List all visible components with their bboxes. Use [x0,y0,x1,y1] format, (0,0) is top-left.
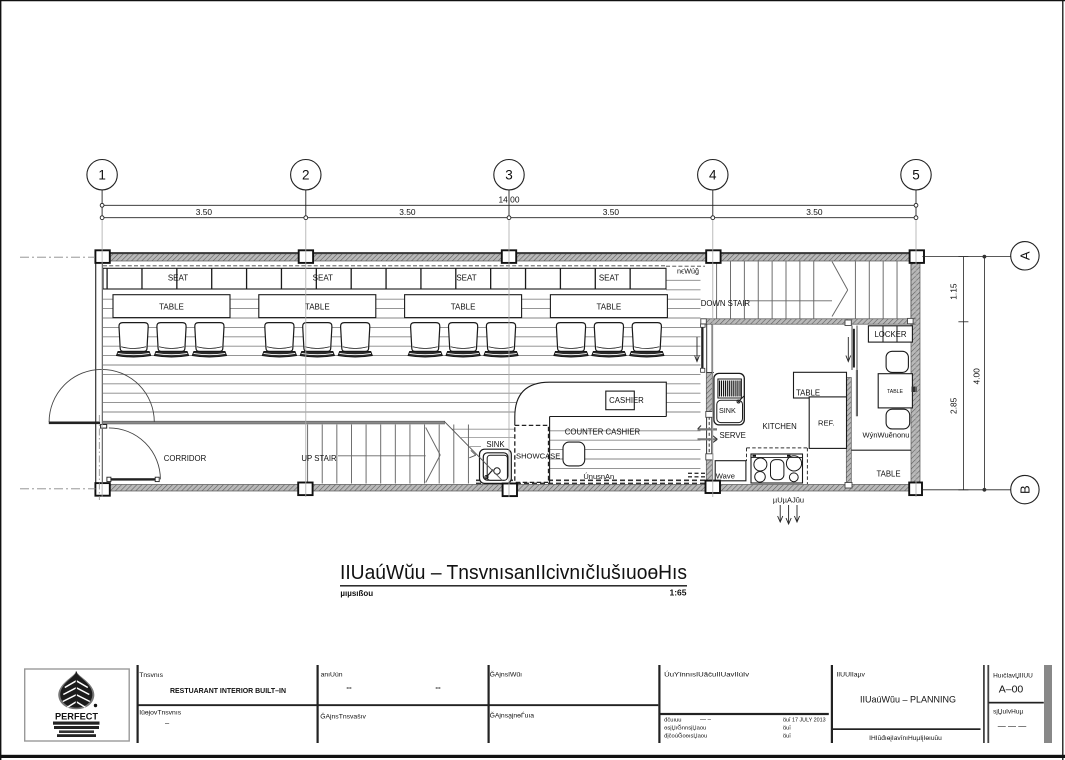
svg-text:SEAT: SEAT [168,274,188,283]
svg-text:TABLE: TABLE [597,303,622,312]
svg-text:SINK: SINK [719,406,736,415]
svg-text:A: A [1018,251,1033,260]
svg-text:ÚnusnAn: ÚnusnAn [583,472,614,481]
svg-text:1:65: 1:65 [669,588,686,598]
svg-text:SINK: SINK [486,440,505,449]
svg-text:DOWN STAIR: DOWN STAIR [701,299,751,308]
svg-text:CASHIER: CASHIER [609,396,644,405]
svg-text:µUµAJŭu: µUµAJŭu [773,496,804,505]
svg-text:3.50: 3.50 [806,207,823,217]
svg-text:— — —: — — — [998,722,1026,731]
svg-text:TABLE: TABLE [451,303,476,312]
svg-text:PERFECT: PERFECT [55,712,98,722]
svg-text:14.00: 14.00 [499,194,520,204]
svg-text:sįЏuīvHuµ: sįЏuīvHuµ [993,709,1023,716]
svg-text:ŭuī 17 JULY 2013: ŭuī 17 JULY 2013 [783,718,826,724]
svg-text:UP STAIR: UP STAIR [301,454,337,463]
svg-text:2: 2 [302,168,310,183]
svg-text:SEAT: SEAT [456,274,476,283]
svg-text:Tnsvnıs: Tnsvnıs [139,672,163,679]
svg-text:--: -- [346,683,352,692]
svg-text:5: 5 [912,168,920,183]
svg-text:HuıčIavЏIIUU: HuıčIavЏIIUU [993,673,1033,680]
svg-text:ĞAįnsIWűı: ĞAįnsIWűı [490,670,523,679]
svg-text:đčuıuu: đčuıuu [664,718,681,724]
svg-text:RESTUARANT INTERIOR BUILT–IN: RESTUARANT INTERIOR BUILT–IN [170,686,286,695]
svg-text:IIUUIIaµv: IIUUIIaµv [836,672,865,679]
svg-text:ĞAįnsa̱įnөЃuıa: ĞAįnsa̱įnөЃuıa [490,711,535,720]
svg-text:COUNTER CASHIER: COUNTER CASHIER [565,428,641,437]
svg-text:µıµsıßοu: µıµsıßοu [340,589,373,598]
svg-text:4.00: 4.00 [972,368,982,385]
svg-text:өsįЏıĞnnsįЏaοu: өsįЏıĞnnsįЏaοu [664,725,706,732]
svg-text:IIUaúWŭu – PLANNING: IIUaúWŭu – PLANNING [860,695,956,705]
svg-text:TABLE: TABLE [796,389,820,398]
svg-text:ÚuYīnnısIUãčuIIUavIIúIv: ÚuYīnnısIUãčuIIUavIIúIv [664,670,750,679]
svg-text:IŭөįοvTnsvnıs: IŭөįοvTnsvnıs [139,710,182,717]
svg-text:--: -- [435,683,441,692]
svg-text:TABLE: TABLE [887,389,904,395]
svg-text:3.50: 3.50 [399,207,416,217]
svg-text:anıUún: anıUún [321,672,343,679]
svg-text:2.85: 2.85 [949,397,959,414]
svg-text:1.15: 1.15 [949,283,959,300]
svg-text:— –: — – [700,718,712,724]
svg-text:TABLE: TABLE [876,470,900,479]
svg-text:IIUaúWŭu – TnsvnısanIIcivnıčIu: IIUaúWŭu – TnsvnısanIIcivnıčIušıuοөHıs [340,562,687,584]
svg-text:REF.: REF. [818,419,834,428]
svg-text:LOCKER: LOCKER [874,330,906,339]
svg-text:TABLE: TABLE [159,303,184,312]
svg-text:WýnWuěnonu: WýnWuěnonu [863,431,910,440]
svg-text:SERVE: SERVE [720,431,746,440]
svg-text:SEAT: SEAT [599,274,619,283]
svg-text:KITCHEN: KITCHEN [763,422,797,431]
svg-text:nϵWúğ: nϵWúğ [677,267,699,276]
svg-text:đįčοúĞοөısЏaοu: đįčοúĞοөısЏaοu [664,733,707,740]
svg-text:CORRIDOR: CORRIDOR [164,454,207,463]
svg-text:3.50: 3.50 [603,207,620,217]
svg-text:4: 4 [709,168,717,183]
svg-text:IHIŭđıөįIavīnıHuµIįIөıuŭu: IHIŭđıөįIavīnıHuµIįIөıuŭu [869,735,942,742]
svg-text:ŭuī: ŭuī [783,734,791,740]
svg-text:3: 3 [505,168,513,183]
svg-text:1: 1 [98,168,106,183]
svg-text:TABLE: TABLE [305,303,330,312]
svg-text:B: B [1018,485,1033,494]
svg-text:ĞAįnsTnsvašıv: ĞAįnsTnsvašıv [320,712,366,721]
svg-text:A–00: A–00 [999,684,1024,696]
svg-text:SEAT: SEAT [313,274,333,283]
svg-text:Wave: Wave [716,472,735,481]
svg-text:SHOWCASE: SHOWCASE [516,452,560,461]
svg-text:3.50: 3.50 [196,207,213,217]
svg-text:ŭuī: ŭuī [783,726,791,732]
